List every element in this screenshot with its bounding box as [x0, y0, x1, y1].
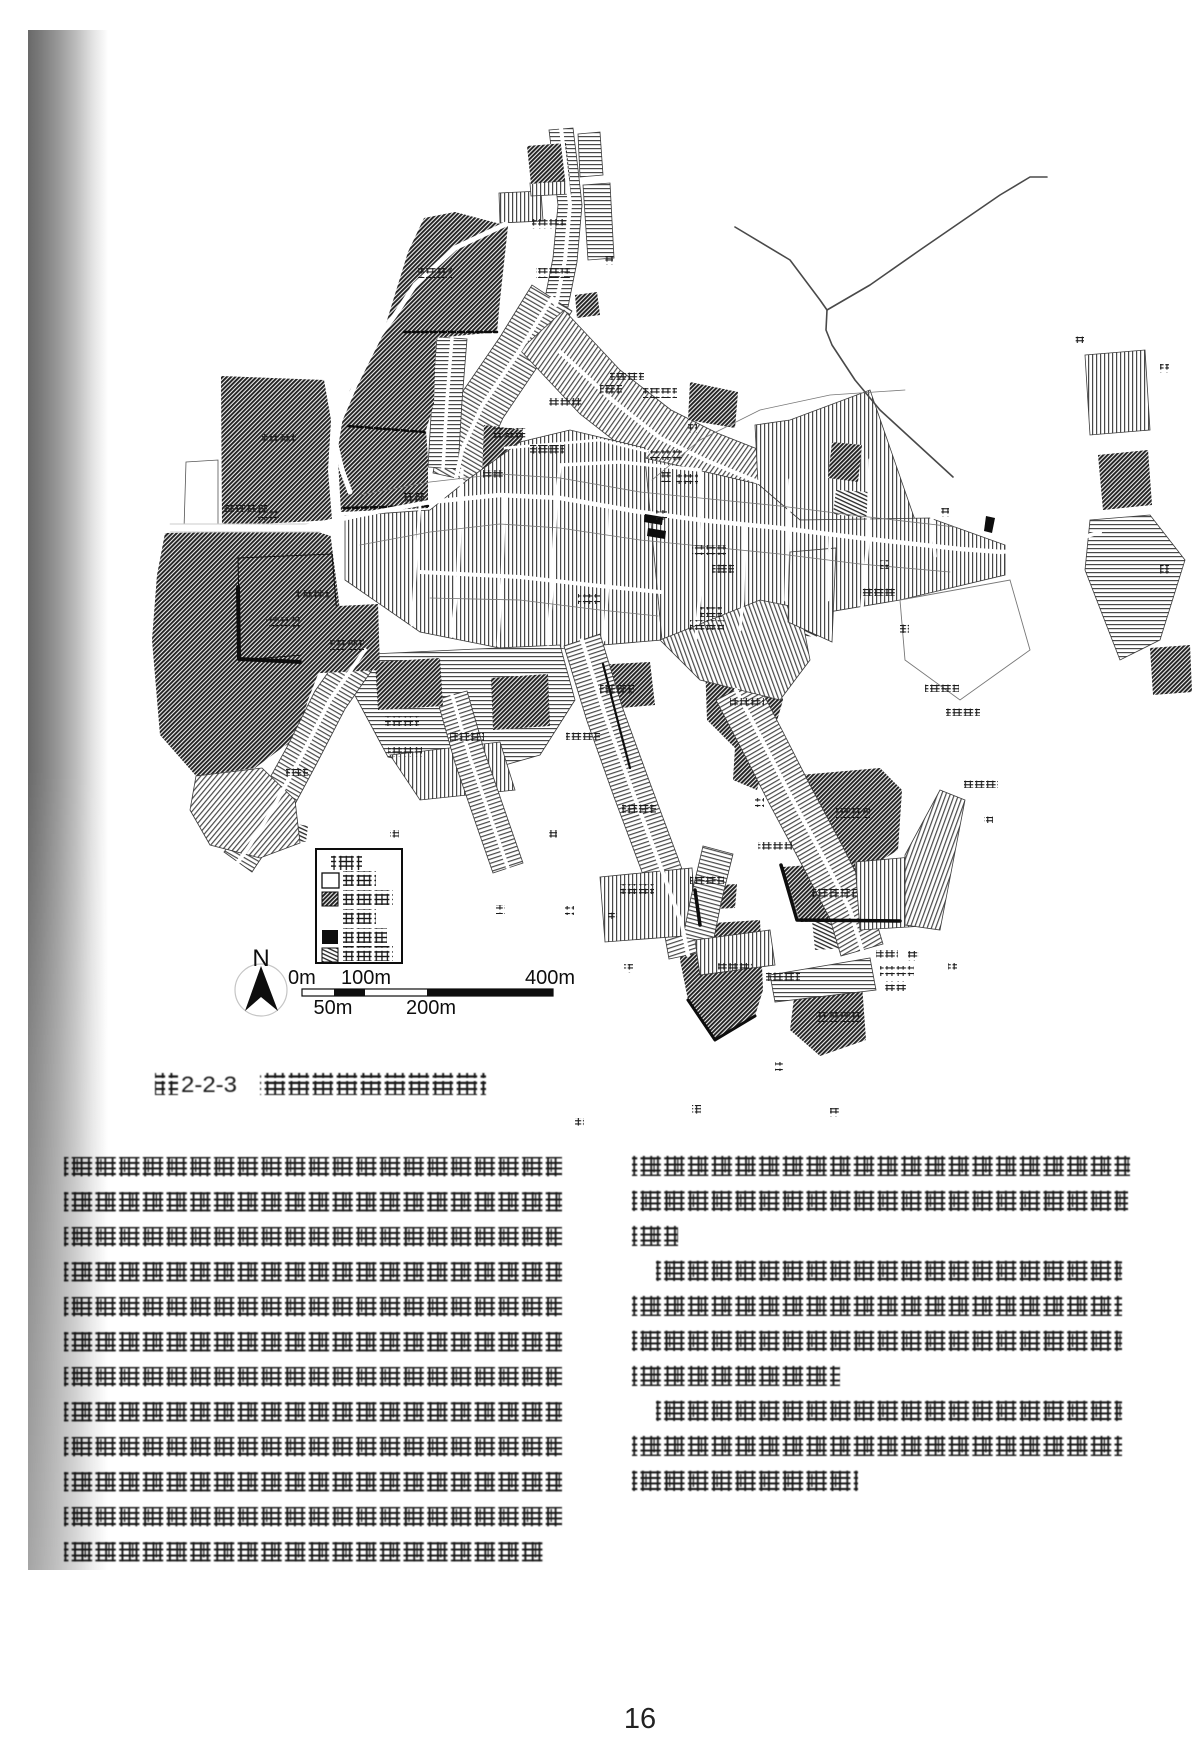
svg-text:2-2-3: 2-2-3 — [181, 1072, 237, 1097]
svg-text:400m: 400m — [525, 967, 575, 989]
svg-text:0m: 0m — [288, 967, 316, 989]
svg-text:200m: 200m — [406, 997, 456, 1019]
svg-text:50m: 50m — [314, 997, 353, 1019]
svg-text:100m: 100m — [341, 967, 391, 989]
